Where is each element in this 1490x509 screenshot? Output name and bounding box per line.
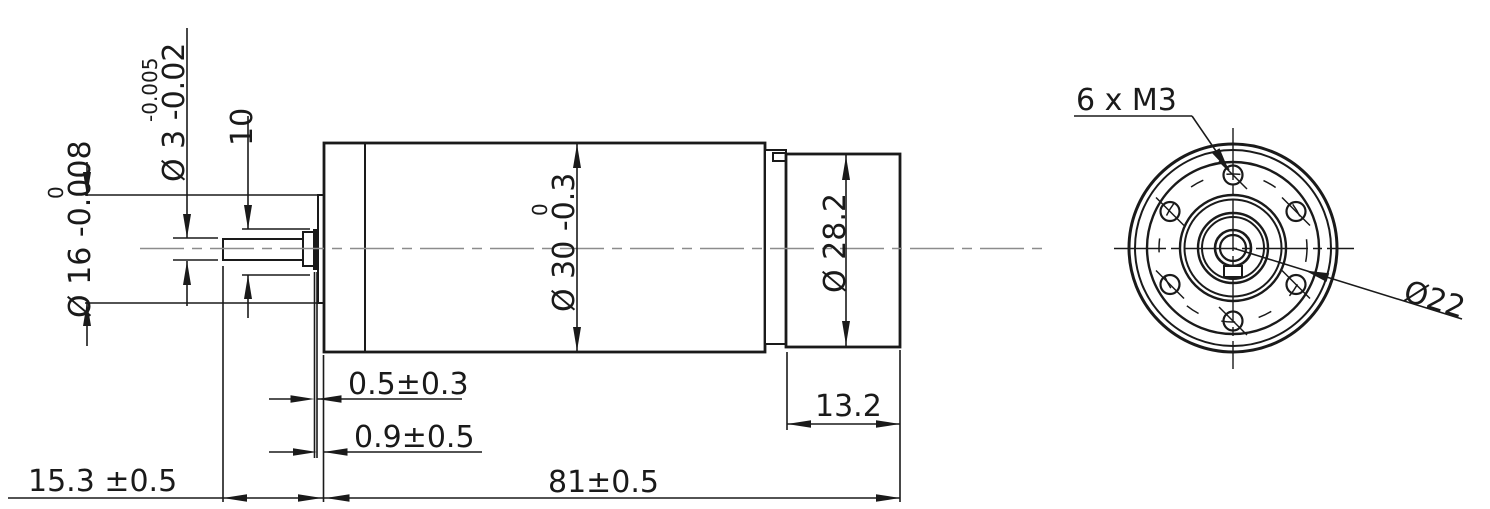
dim-cap-diameter: Ø 28.2 (818, 193, 853, 293)
dim-pilot-diameter: Ø 16 -0.008 0 (44, 140, 98, 318)
pilot-dia-upper-tol: 0 (44, 186, 68, 199)
mounting-hole (1282, 271, 1310, 299)
motor-ring (765, 150, 786, 344)
bolt-circle-label: Ø22 (1400, 274, 1469, 326)
body-dia-value: Ø 30 -0.3 (547, 173, 582, 312)
dim-shaft-diameter: Ø 3 -0.02 -0.005 (138, 43, 192, 182)
bolt-circle-value: Ø22 (1400, 274, 1469, 326)
keyway-notch (1224, 266, 1242, 277)
drawing-canvas: Ø 16 -0.008 0 Ø 3 -0.02 -0.005 10 Ø 30 -… (0, 0, 1490, 509)
body-dia-upper-tol: 0 (528, 203, 552, 216)
shaft-extension-value: 15.3 ±0.5 (28, 464, 177, 499)
mounting-holes-label: 6 x M3 (1076, 83, 1177, 118)
mounting-hole (1219, 307, 1247, 335)
shaft-length-value: 10 (225, 108, 260, 146)
cap-dia-value: Ø 28.2 (818, 193, 853, 293)
shaft-dia-value: Ø 3 -0.02 (157, 43, 192, 182)
mounting-hole (1219, 161, 1247, 189)
cap-length-value: 13.2 (815, 389, 882, 424)
body-length-value: 81±0.5 (548, 465, 659, 500)
ring-notch (773, 153, 786, 161)
dim-shaft-length: 10 (225, 108, 260, 146)
mounting-hole (1156, 198, 1184, 226)
washer-gap-value: 0.5±0.3 (348, 367, 469, 402)
gearbox-body (324, 143, 765, 352)
technical-drawing: Ø 16 -0.008 0 Ø 3 -0.02 -0.005 10 Ø 30 -… (0, 0, 1490, 509)
pilot-dia-value: Ø 16 -0.008 (63, 140, 98, 318)
motor-shaft (223, 239, 303, 260)
shoulder-gap-value: 0.9±0.5 (354, 420, 475, 455)
shaft-dia-upper-tol: -0.005 (138, 58, 162, 122)
